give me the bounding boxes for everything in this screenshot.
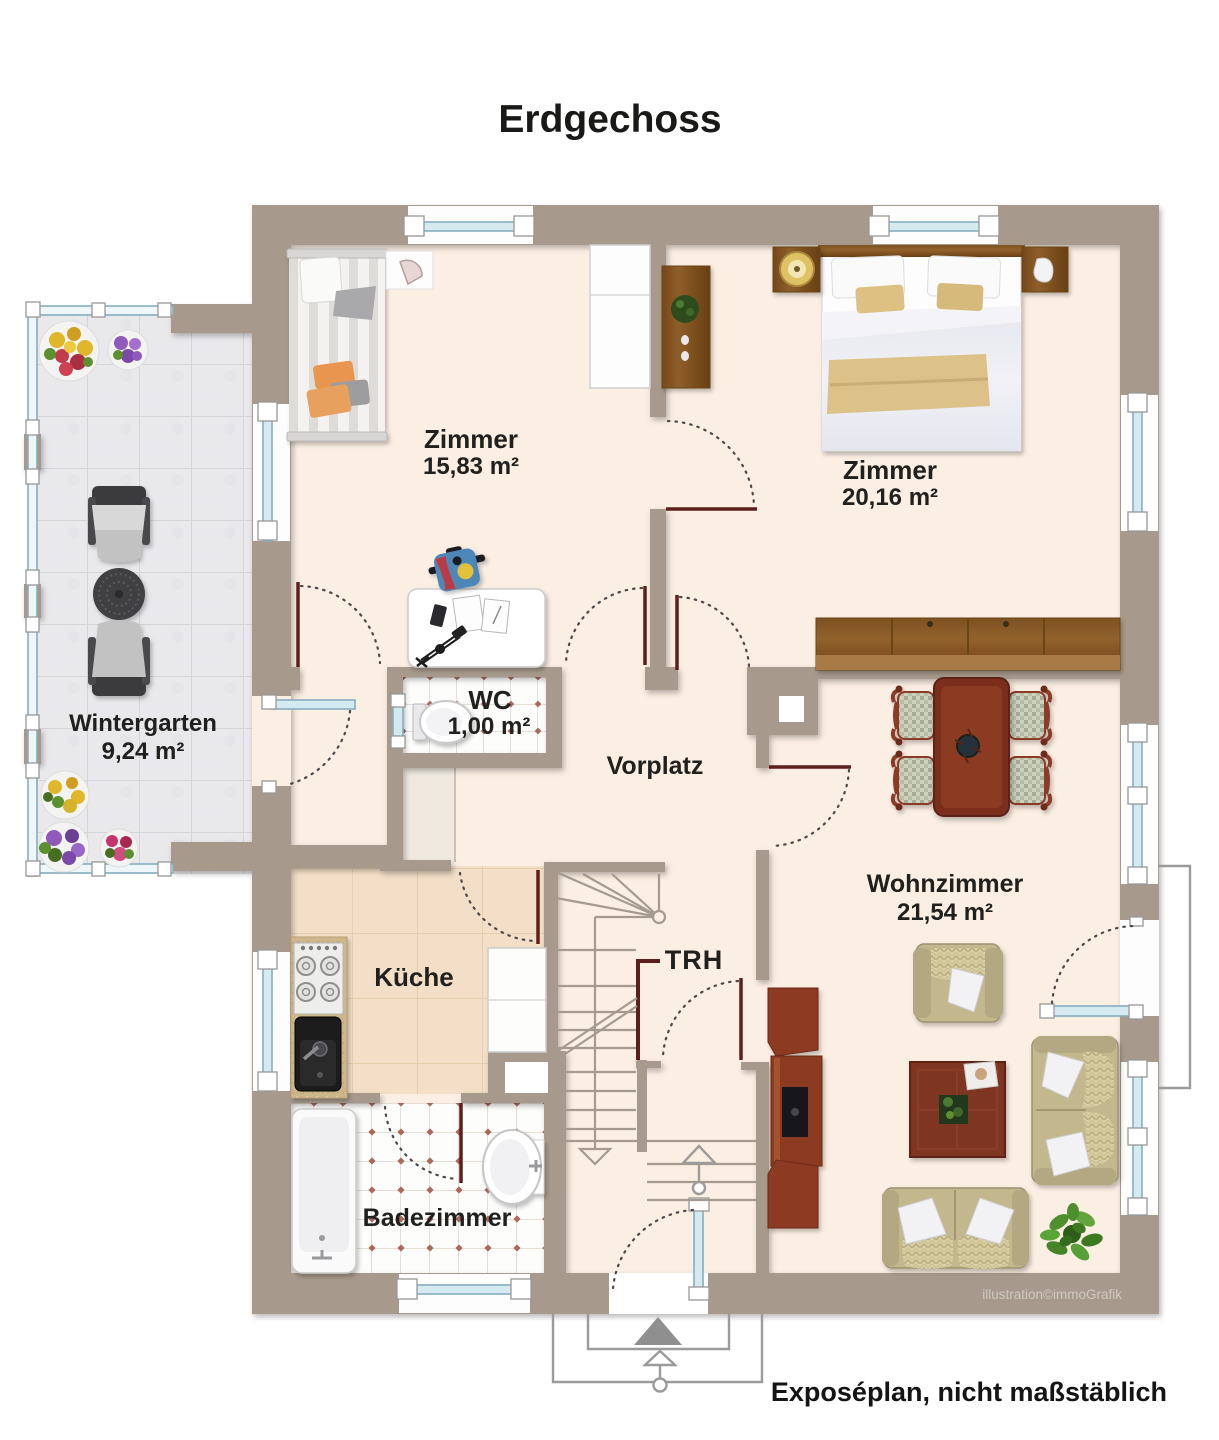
- svg-text:TRH: TRH: [665, 945, 724, 975]
- svg-text:20,16 m²: 20,16 m²: [842, 484, 938, 511]
- svg-text:Badezimmer: Badezimmer: [363, 1204, 512, 1232]
- svg-text:1,00 m²: 1,00 m²: [448, 713, 531, 740]
- svg-text:WC: WC: [468, 685, 512, 715]
- svg-text:Zimmer: Zimmer: [424, 424, 518, 454]
- svg-text:illustration©immoGrafik: illustration©immoGrafik: [982, 1287, 1122, 1302]
- svg-text:9,24 m²: 9,24 m²: [102, 738, 185, 765]
- svg-text:15,83 m²: 15,83 m²: [423, 453, 519, 480]
- svg-text:Wintergarten: Wintergarten: [69, 710, 217, 737]
- svg-text:21,54 m²: 21,54 m²: [897, 899, 993, 926]
- svg-text:Vorplatz: Vorplatz: [607, 752, 704, 780]
- svg-text:Exposéplan, nicht maßstäblich: Exposéplan, nicht maßstäblich: [771, 1377, 1167, 1407]
- svg-text:Küche: Küche: [374, 962, 453, 992]
- svg-text:Wohnzimmer: Wohnzimmer: [867, 870, 1024, 898]
- svg-text:Erdgechoss: Erdgechoss: [498, 98, 721, 141]
- svg-text:Zimmer: Zimmer: [843, 455, 937, 485]
